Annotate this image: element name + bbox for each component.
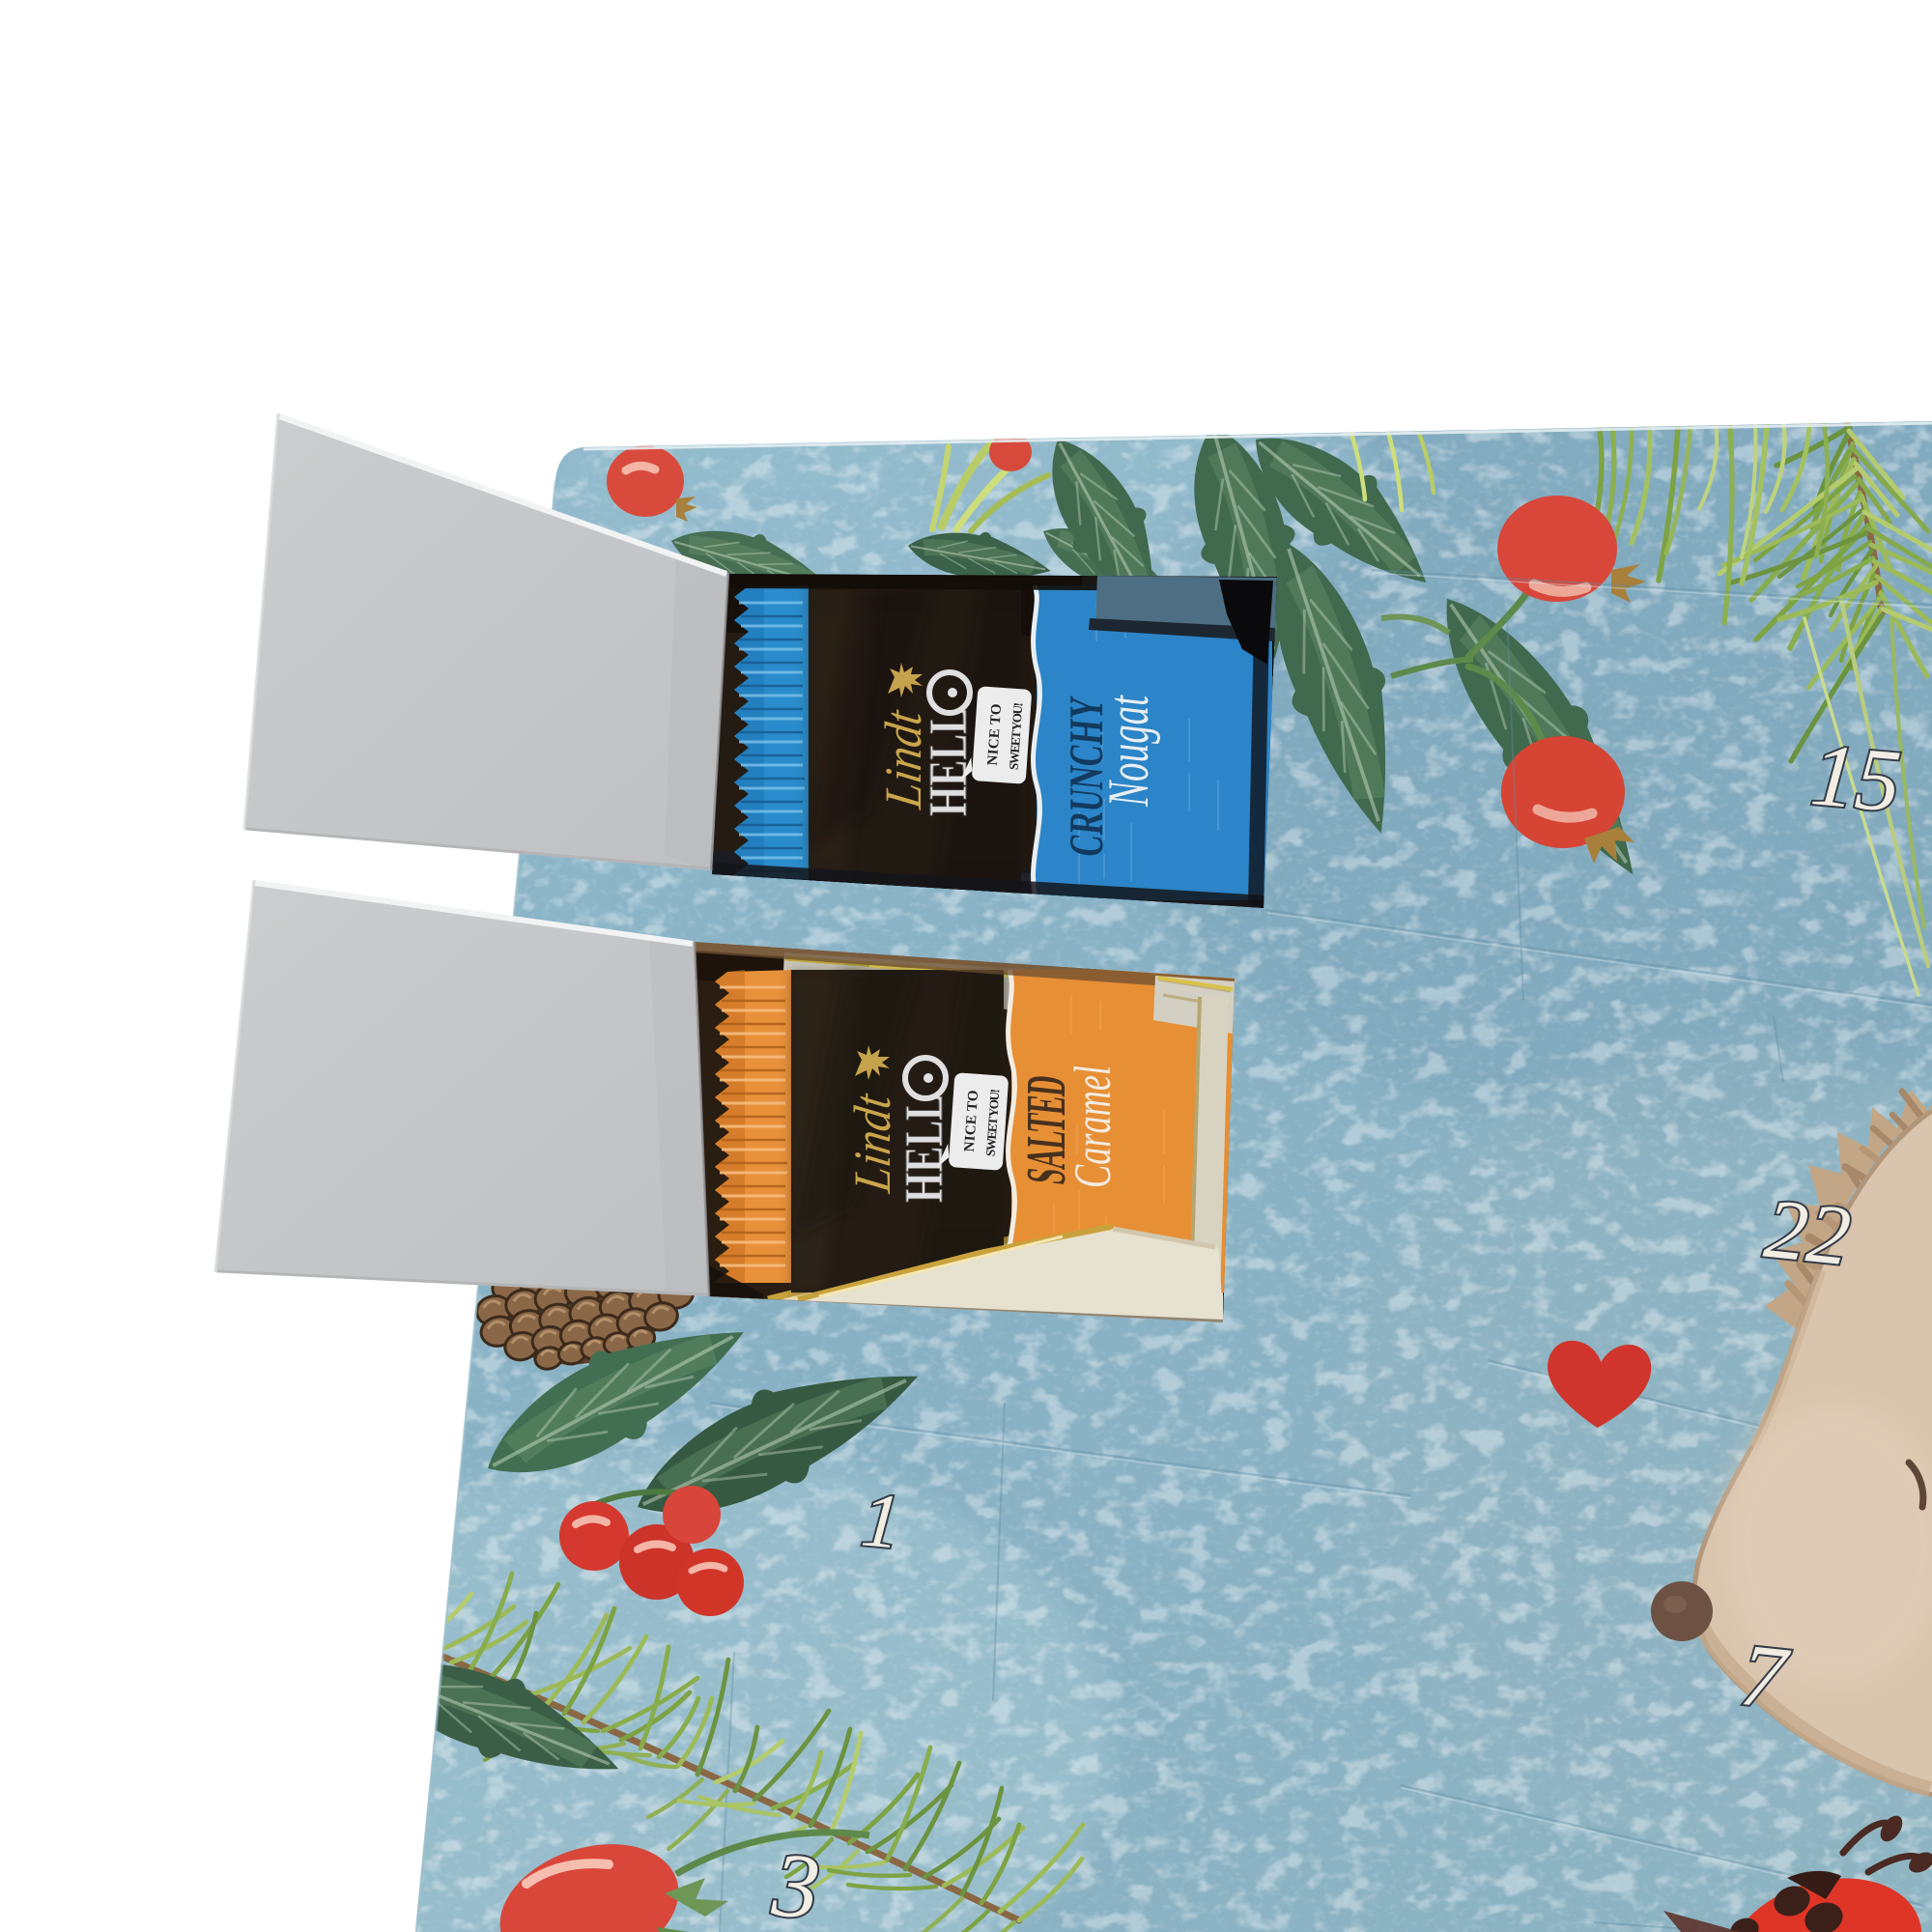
svg-text:Lindt: Lindt (843, 1089, 901, 1196)
svg-text:1: 1 (858, 1477, 904, 1565)
svg-text:15: 15 (1807, 724, 1905, 831)
svg-text:22: 22 (1760, 1182, 1855, 1285)
svg-text:HELL: HELL (895, 1094, 954, 1203)
svg-text:Nougat: Nougat (1096, 695, 1160, 808)
svg-text:Caramel: Caramel (1064, 1065, 1122, 1188)
svg-text:3: 3 (768, 1833, 824, 1932)
